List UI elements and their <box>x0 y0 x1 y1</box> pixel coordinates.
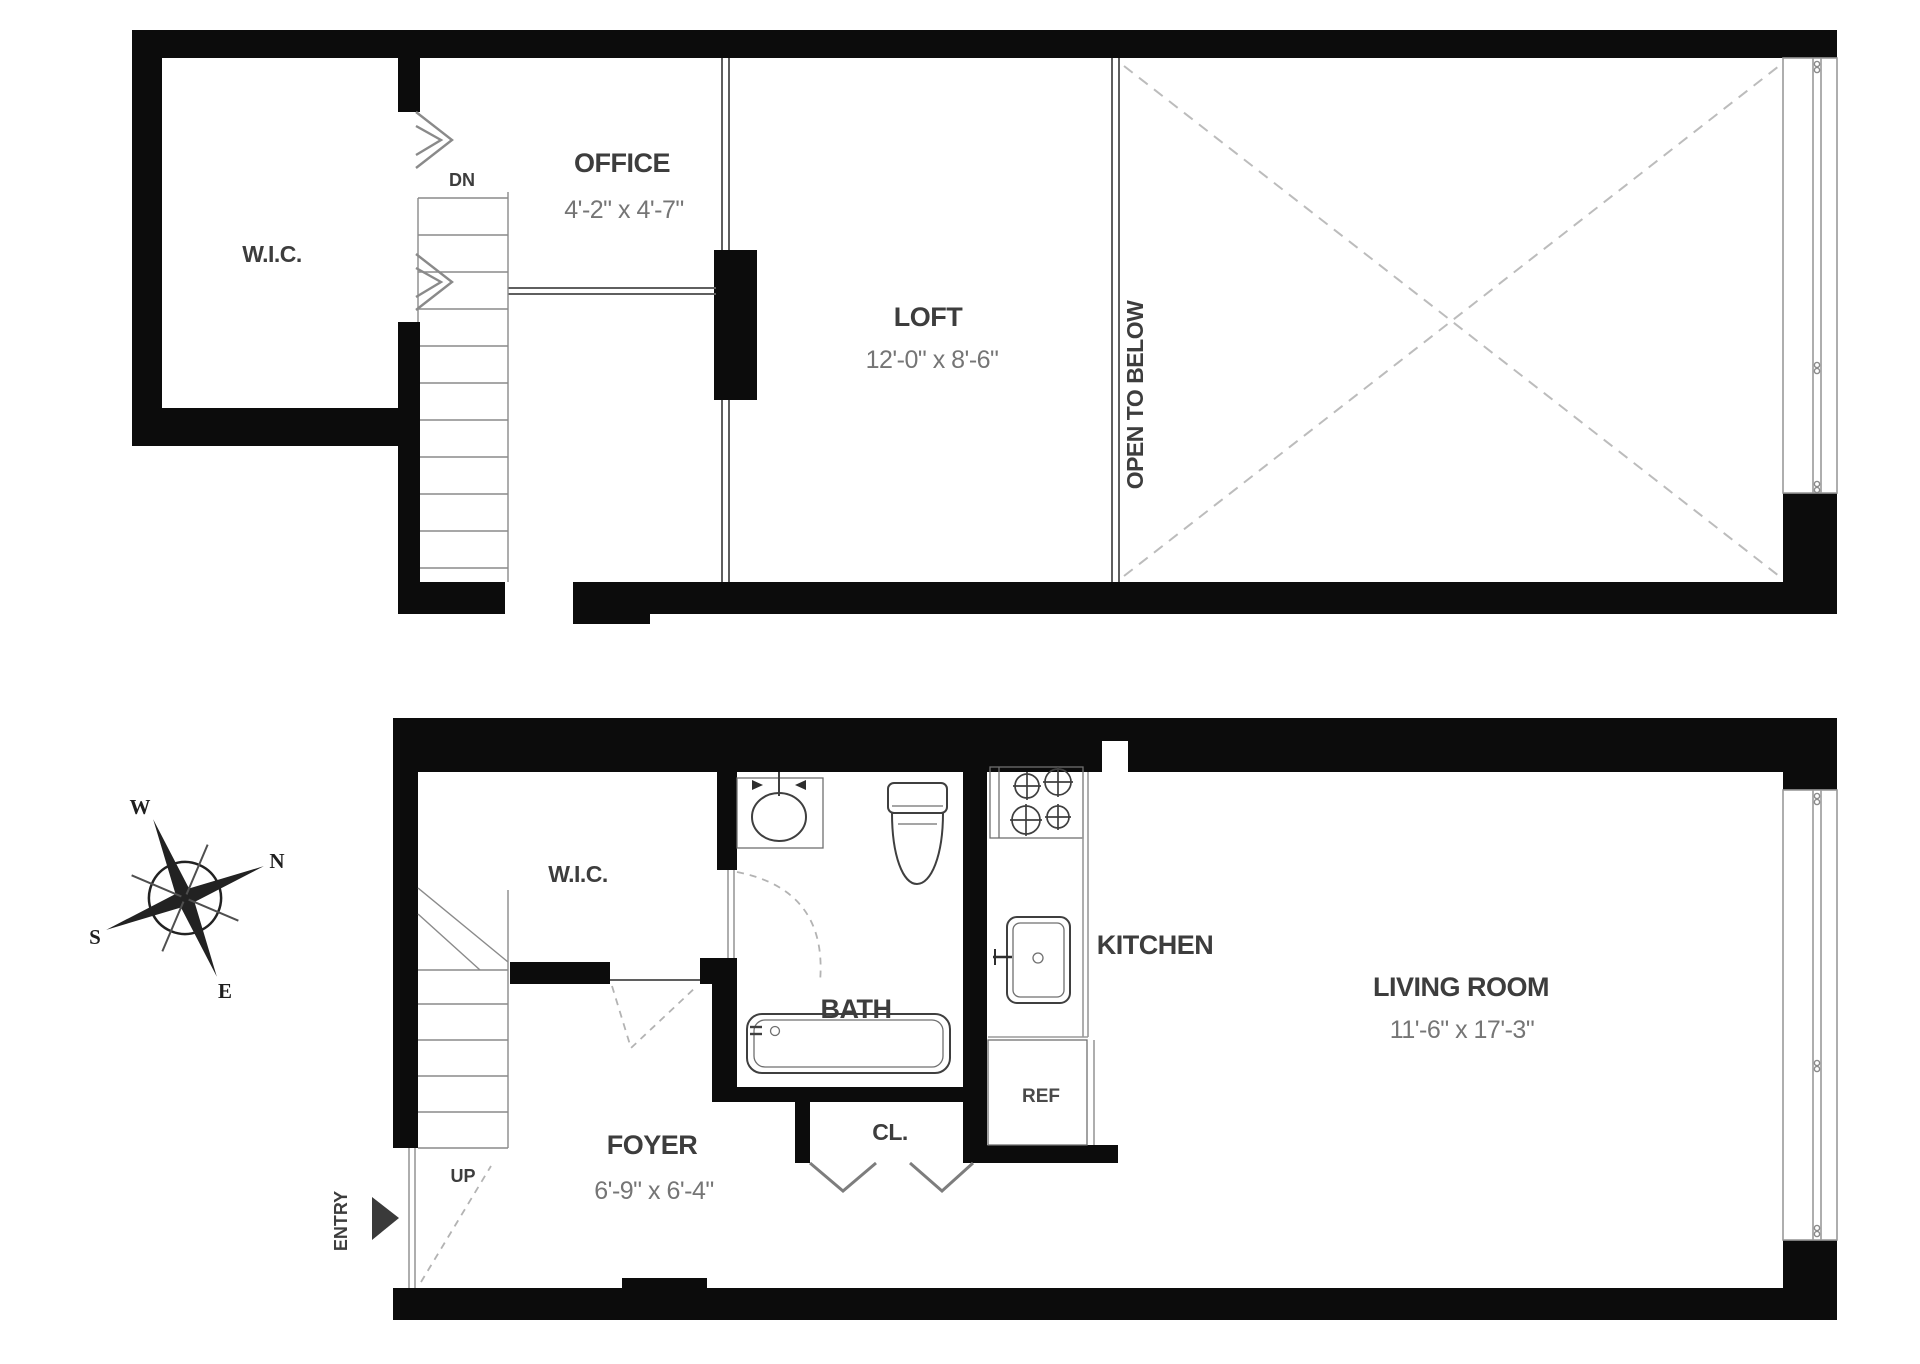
lower-door-frames <box>409 870 734 1288</box>
loft-dimensions: 12'-0" x 8'-6" <box>866 346 999 374</box>
compass-icon: N W S E <box>74 787 295 1008</box>
living-room-label: LIVING ROOM <box>1373 972 1549 1002</box>
open-to-below-label: OPEN TO BELOW <box>1122 300 1148 489</box>
open-to-below-x <box>1124 66 1779 576</box>
office-label: OFFICE <box>574 148 670 178</box>
window-tick-icon <box>1814 61 1819 492</box>
stove <box>990 767 1083 838</box>
closet-doors <box>810 1163 973 1191</box>
upper-window <box>1783 58 1837 493</box>
floor-plan-drawing: W.I.C. DN OFFICE 4'-2" x 4'-7" LOFT 12'-… <box>0 0 1920 1364</box>
lower-window <box>1783 790 1837 1240</box>
window-tick-icon <box>1814 793 1819 1236</box>
door-swings <box>421 872 821 1282</box>
bath-label: BATH <box>821 994 892 1024</box>
office-dimensions: 4'-2" x 4'-7" <box>564 196 683 224</box>
compass-e: E <box>218 979 232 1003</box>
upper-door-chevrons <box>416 112 452 310</box>
lower-stairs-up <box>418 888 508 1148</box>
floor-plan-page: W.I.C. DN OFFICE 4'-2" x 4'-7" LOFT 12'-… <box>0 0 1920 1364</box>
upper-stairs-dn <box>418 192 508 582</box>
loft-label: LOFT <box>894 302 963 332</box>
bath-sink <box>737 772 823 848</box>
foyer-label: FOYER <box>607 1130 698 1160</box>
fridge-label: REF <box>1022 1086 1060 1107</box>
upper-walls <box>132 30 1837 624</box>
upper-partitions <box>508 58 1119 582</box>
kitchen-label: KITCHEN <box>1097 930 1214 960</box>
closet-label: CL. <box>872 1119 908 1145</box>
entry-label: ENTRY <box>331 1191 351 1251</box>
compass-s: S <box>89 925 101 949</box>
living-room-dimensions: 11'-6" x 17'-3" <box>1390 1016 1534 1044</box>
upper-floor-plan: W.I.C. DN OFFICE 4'-2" x 4'-7" LOFT 12'-… <box>132 30 1837 624</box>
entry-arrow-icon <box>372 1197 399 1240</box>
kitchen-sink <box>993 917 1070 1003</box>
compass-w: W <box>130 795 151 819</box>
lower-walls <box>393 718 1837 1320</box>
lower-floor-plan: W.I.C. BATH KITCHEN REF LIVING ROOM 11'-… <box>331 718 1837 1320</box>
foyer-dimensions: 6'-9" x 6'-4" <box>594 1177 713 1205</box>
dn-label: DN <box>449 170 475 190</box>
up-label: UP <box>450 1166 475 1186</box>
toilet <box>888 783 947 884</box>
lower-wic-label: W.I.C. <box>548 861 608 887</box>
compass-n: N <box>269 849 284 873</box>
upper-wic-label: W.I.C. <box>242 241 302 267</box>
